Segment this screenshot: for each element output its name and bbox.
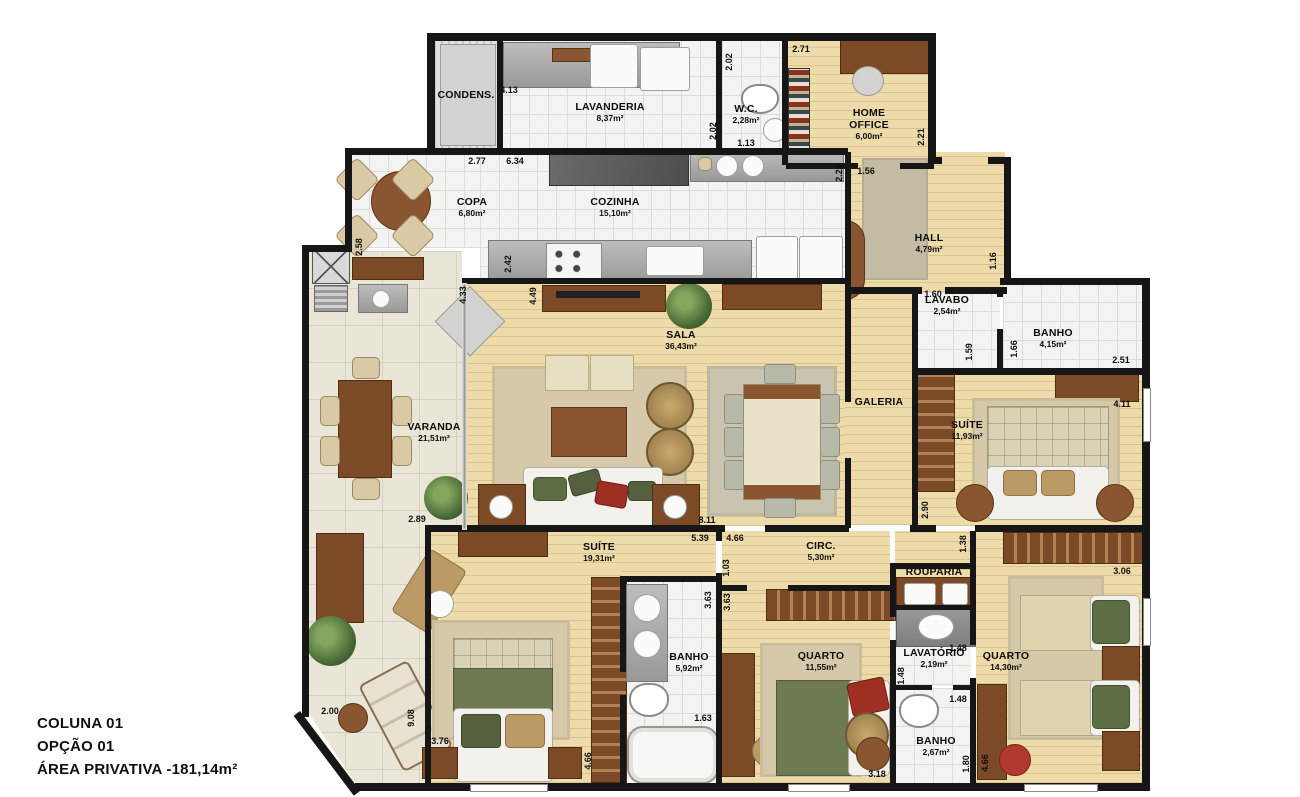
quarto1-wardrobe	[766, 589, 896, 621]
room-label-lavanderia: LAVANDERIA8,37m²	[575, 101, 644, 123]
room-label-quarto-1: QUARTO11,55m²	[798, 650, 845, 672]
wall	[845, 458, 851, 528]
dimension-label: 1.16	[988, 252, 998, 270]
dimension-label: 2.00	[321, 706, 339, 716]
bed-pillow	[1092, 600, 1130, 644]
dimension-label: 4.66	[583, 752, 593, 770]
dimension-label: 1.56	[857, 166, 875, 176]
freezer	[799, 236, 843, 282]
coffee-table	[551, 407, 627, 457]
room-label-rouparia: ROUPARIA	[906, 566, 963, 578]
stove	[546, 243, 602, 279]
varanda-chair	[352, 357, 380, 379]
wall	[988, 157, 1011, 164]
room-label-banho-social: BANHO4,15m²	[1033, 327, 1073, 349]
room-label-varanda: VARANDA21,51m²	[407, 421, 460, 443]
dimension-label: 3.06	[1113, 566, 1131, 576]
room-label-quarto-2: QUARTO14,30m²	[983, 650, 1030, 672]
side-table	[856, 737, 890, 771]
wall	[620, 695, 626, 785]
wall	[1142, 278, 1150, 791]
varanda-bench	[316, 533, 364, 623]
dimension-label: 2.23	[834, 164, 844, 182]
dimension-label: 1.48	[949, 694, 967, 704]
dining-chair	[820, 394, 840, 424]
dimension-label: 4.33	[458, 286, 468, 304]
service-shaft	[312, 249, 350, 284]
window	[1143, 388, 1151, 442]
dimension-label: 2.21	[916, 128, 926, 146]
wall	[620, 576, 722, 582]
wall	[425, 531, 431, 783]
laundry-sink	[590, 44, 638, 88]
washing-machine	[640, 47, 690, 91]
glass-door	[462, 283, 467, 530]
office-desk	[840, 40, 932, 74]
nightstand	[956, 484, 994, 522]
wall	[928, 33, 936, 164]
room-label-copa: COPA6,80m²	[457, 196, 487, 218]
floor-region	[845, 292, 913, 525]
dimension-label: 1.80	[961, 755, 971, 773]
hall-rug	[862, 158, 928, 280]
office-chair	[852, 66, 884, 96]
dimension-label: 4.49	[528, 287, 538, 305]
fridge	[756, 236, 798, 282]
side-table	[338, 703, 368, 733]
suite1-wardrobe	[917, 372, 955, 492]
wall	[1004, 157, 1011, 285]
plan-footer: COLUNA 01 OPÇÃO 01 ÁREA PRIVATIVA -181,1…	[37, 712, 237, 781]
room-label-home-office: HOME OFFICE6,00m²	[843, 107, 895, 141]
bed-pillow	[1092, 685, 1130, 729]
room-label-banho-suite: BANHO5,92m²	[669, 651, 709, 673]
wall	[345, 148, 442, 155]
wall	[788, 585, 895, 591]
wall	[997, 287, 1003, 297]
dimension-label: 2.02	[708, 122, 718, 140]
dimension-label: 1.38	[958, 535, 968, 553]
nightstand	[1096, 484, 1134, 522]
bed-pillow	[1003, 470, 1037, 496]
dimension-label: 8.11	[698, 515, 715, 525]
wall	[716, 531, 722, 541]
toilet	[899, 694, 939, 728]
dimension-label: 2.42	[503, 255, 513, 273]
room-label-cozinha: COZINHA15,10m²	[590, 196, 639, 218]
wall	[716, 591, 722, 785]
rouparia-box	[942, 583, 968, 605]
window	[1143, 598, 1151, 646]
room-label-banho-3: BANHO2,67m²	[916, 735, 956, 757]
dimension-label: 1.66	[1009, 340, 1019, 358]
footer-area-privativa: ÁREA PRIVATIVA -181,14m²	[37, 758, 237, 781]
grill	[314, 285, 348, 312]
wall	[302, 245, 352, 252]
suite2-bed-head	[453, 638, 553, 672]
plant	[666, 283, 712, 329]
bed-pillow	[505, 714, 545, 748]
wall	[434, 148, 848, 155]
wall	[845, 287, 922, 294]
wall	[845, 292, 851, 402]
room-label-wc: W.C.2,28m²	[733, 103, 760, 125]
kitchen-island	[549, 150, 689, 186]
quarto1-bed-blanket	[776, 680, 852, 776]
console-table	[722, 284, 822, 310]
room-label-hall: HALL4,79m²	[915, 232, 944, 254]
dimension-label: 9.08	[406, 709, 416, 727]
dimension-label: 1.03	[721, 559, 731, 577]
wall	[345, 148, 352, 252]
quarto2-bed-blanket	[1020, 680, 1094, 736]
dimension-label: 2.90	[920, 501, 930, 519]
dimension-label: 6.34	[506, 156, 524, 166]
sofa-pillow	[533, 477, 567, 501]
desk	[721, 653, 755, 777]
wall	[302, 245, 309, 717]
wall	[910, 525, 936, 532]
dining-chair	[724, 460, 744, 490]
varanda-chair	[352, 478, 380, 500]
wall	[620, 576, 626, 672]
quarto2-bed-blanket	[1020, 595, 1094, 651]
dimension-label: 5.39	[691, 533, 709, 543]
wall	[890, 640, 896, 785]
window	[470, 784, 548, 792]
dining-chair	[820, 460, 840, 490]
room-label-sala: SALA36,43m²	[665, 329, 697, 351]
dimension-label: 1.63	[694, 713, 712, 723]
wall	[716, 585, 747, 591]
wall	[912, 287, 918, 375]
rouparia-box	[904, 583, 936, 605]
ottoman	[545, 355, 589, 391]
dining-chair	[820, 427, 840, 457]
tv	[556, 291, 640, 298]
nightstand	[1102, 731, 1140, 771]
room-label-circ: CIRC.5,30m²	[806, 540, 836, 562]
wall	[427, 33, 435, 155]
window	[1024, 784, 1098, 792]
varanda-table	[338, 380, 392, 478]
dining-chair	[724, 427, 744, 457]
dimension-label: 2.89	[408, 514, 426, 524]
counter-burner	[742, 155, 764, 177]
wall	[845, 152, 851, 294]
wall	[915, 368, 1148, 375]
quarto2-wardrobe	[1003, 532, 1147, 564]
ottoman	[590, 355, 634, 391]
dimension-label: 1.59	[964, 343, 974, 361]
toilet	[629, 683, 669, 717]
lavatorio-sink	[918, 614, 954, 640]
wall	[970, 531, 976, 645]
footer-coluna: COLUNA 01	[37, 712, 237, 735]
dimension-label: 3.76	[431, 736, 449, 746]
nightstand	[548, 747, 582, 779]
dimension-label: 3.63	[703, 591, 713, 609]
dimension-label: 4.66	[980, 754, 990, 772]
dimension-label: 1.48	[949, 643, 967, 653]
wall	[895, 605, 975, 610]
dimension-label: 2.02	[724, 53, 734, 71]
wall	[900, 163, 934, 169]
dining-table	[743, 384, 821, 500]
suite2-tv-console	[458, 530, 548, 557]
varanda-counter	[352, 257, 424, 280]
dimension-label: 1.13	[737, 138, 755, 148]
counter-burner	[716, 155, 738, 177]
dimension-label: 1.60	[924, 289, 942, 299]
varanda-sink	[372, 290, 390, 308]
wall	[425, 525, 725, 532]
wall	[1000, 278, 1148, 285]
laundry-shelf	[552, 48, 594, 62]
plant	[306, 616, 356, 666]
dimension-label: 4.11	[1113, 399, 1130, 409]
dimension-label: 3.63	[722, 593, 732, 611]
floor-plan: CONDENS.LAVANDERIA8,37m²W.C.2,28m²HOME O…	[0, 0, 1300, 797]
lamp	[663, 495, 687, 519]
varanda-chair	[320, 436, 340, 466]
bathtub	[627, 726, 719, 784]
bed-pillow	[461, 714, 501, 748]
dimension-label: 2.71	[792, 44, 810, 54]
bath-sink	[633, 630, 661, 658]
bath-sink	[633, 594, 661, 622]
dining-chair	[724, 394, 744, 424]
dimension-label: 2.58	[354, 238, 364, 256]
lamp	[489, 495, 513, 519]
desk-chair	[999, 744, 1031, 776]
kitchen-sink	[646, 246, 704, 276]
tv-console	[542, 285, 666, 312]
window	[788, 784, 850, 792]
dimension-label: 2.51	[1112, 355, 1130, 365]
kitchen-counter-bottom	[488, 240, 752, 282]
dimension-label: 2.77	[468, 156, 486, 166]
rattan-armchair	[646, 382, 694, 430]
wall	[975, 525, 1148, 532]
suite1-bed-head	[987, 406, 1109, 470]
suite2-bed-blanket	[453, 668, 553, 712]
wall	[895, 685, 932, 690]
wall	[427, 33, 935, 41]
room-label-galeria: GALERIA	[855, 396, 904, 408]
room-label-suite-2: SUÍTE19,31m²	[583, 541, 615, 563]
room-label-suite-1: SUÍTE11,93m²	[951, 419, 983, 441]
dimension-label: 4.13	[500, 85, 518, 95]
wall	[765, 525, 849, 532]
wall	[462, 278, 848, 284]
dining-chair	[764, 498, 796, 518]
footer-opcao: OPÇÃO 01	[37, 735, 237, 758]
wall	[912, 374, 918, 529]
office-bookshelf	[788, 68, 810, 156]
dining-chair	[764, 364, 796, 384]
varanda-chair	[320, 396, 340, 426]
counter-board	[698, 157, 712, 171]
room-label-condens: CONDENS.	[437, 89, 494, 101]
dimension-label: 4.66	[726, 533, 744, 543]
bed-pillow	[1041, 470, 1075, 496]
wall	[782, 38, 788, 165]
dimension-label: 3.18	[868, 769, 886, 779]
dimension-label: 1.48	[896, 667, 906, 685]
